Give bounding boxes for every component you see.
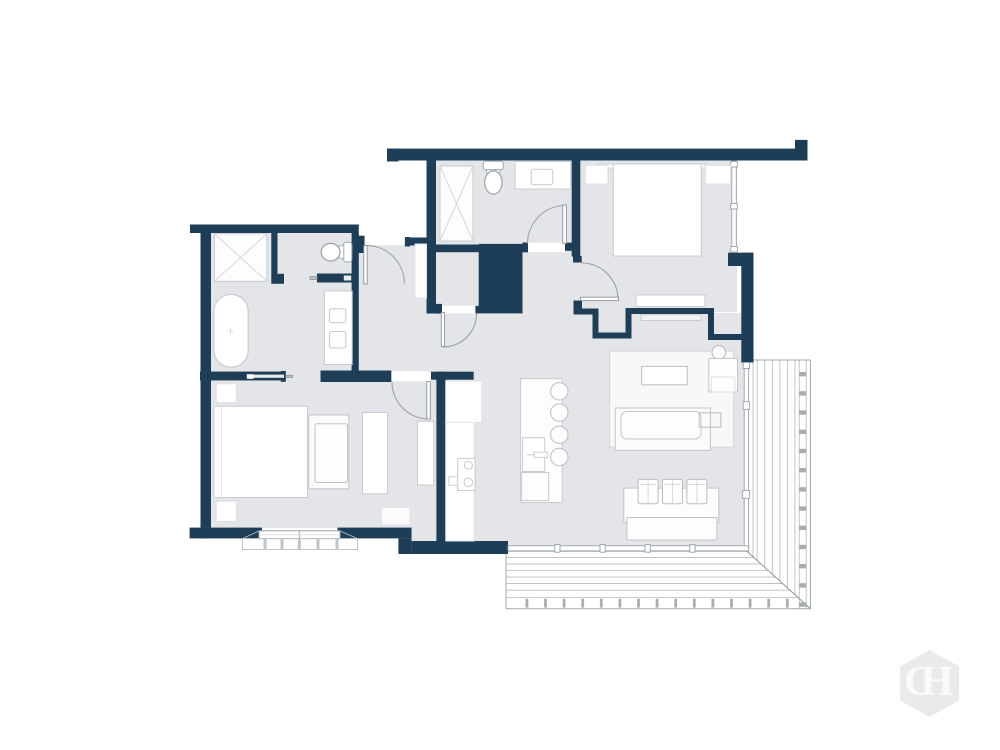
svg-text:H: H (921, 659, 954, 705)
